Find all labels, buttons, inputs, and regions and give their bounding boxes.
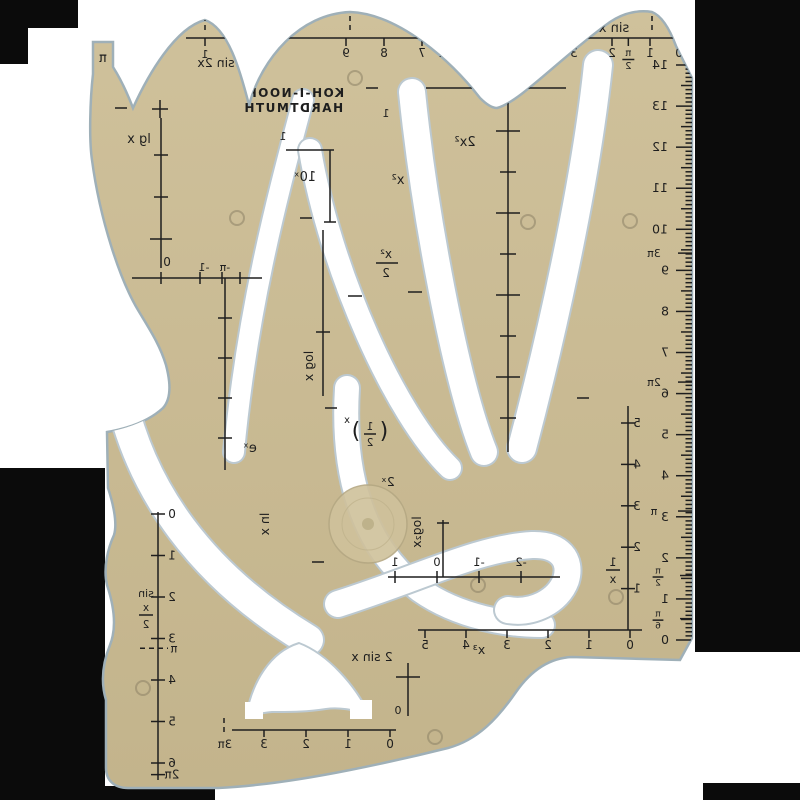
half-pow-num: 1 (367, 421, 374, 433)
scan-border-right-strip (695, 0, 800, 652)
ruler-number-1: 1 (661, 591, 669, 606)
brand-line-2: HARDTMUTH (243, 101, 343, 115)
inv-h-label-0: 0 (626, 638, 634, 652)
top-scale-label: 2π (439, 46, 454, 60)
half-pow-den: 2 (367, 437, 374, 449)
top-scale-frac-den: 2 (625, 61, 631, 72)
sinhalf-label-0: 0 (168, 507, 176, 521)
sinhalf-label-2π: 2π (165, 768, 180, 782)
neg-axis-minus1: -1 (199, 261, 210, 274)
hump-foot-right (350, 700, 372, 719)
sq-one: 1 (383, 107, 390, 120)
ruler-number-4: 4 (661, 468, 669, 483)
ruler-number-3: 3 (661, 509, 669, 524)
label-10-pow-x: 10ˣ (294, 170, 317, 185)
label-sin-half-word: sin (138, 587, 154, 600)
label-2-sin-x: 2 sin x (351, 649, 392, 664)
top-scale-label: 3 (570, 46, 578, 60)
hump-foot-left (245, 702, 263, 719)
label-pi-tab: π (99, 51, 107, 66)
ruler-number-13: 13 (652, 98, 668, 113)
sin2x-one: 1 (202, 48, 209, 61)
inv-h-label-4: 4 (462, 638, 470, 652)
ruler-pi-mark-3π: 3π (647, 247, 661, 260)
label-e-pow-x: eˣ (243, 441, 257, 456)
half-pow-paren-open: ( (380, 419, 389, 444)
photo-stage: { "brand": {"line1": "KOH-I-NOOR", "line… (0, 0, 800, 800)
sinhalf-label-2: 2 (168, 590, 176, 604)
ruler-number-9: 9 (661, 262, 669, 277)
label-lg-x: lg x (127, 132, 151, 147)
ruler-number-11: 11 (652, 180, 668, 195)
inv-frac-den: x (609, 572, 616, 586)
hump-label-0: 0 (386, 737, 394, 751)
template-photo: KOH-I-NOOR HARDTMUTH sin x sin 2x π lg x… (0, 0, 800, 800)
ruler-pifrac-num: π (655, 610, 661, 620)
label-2-pow-x: 2ˣ (381, 474, 395, 489)
log2-label--1: -1 (473, 555, 484, 569)
label-sin-half-den: 2 (143, 619, 150, 631)
top-scale-label: 8 (380, 46, 388, 60)
label-2x-squared: 2x² (454, 135, 475, 150)
top-scale-label: 2 (608, 46, 616, 60)
sinhalf-label-4: 4 (168, 673, 176, 687)
inv-v-label-5: 5 (633, 416, 641, 430)
label-x-cubed: x³ (473, 642, 485, 657)
log2-label--2: -2 (515, 555, 526, 569)
label-x-squared: x² (392, 173, 405, 188)
top-scale-label: 0 (675, 46, 683, 60)
tenx-one: 1 (280, 130, 287, 143)
sinhalf-pi-label: π (170, 641, 177, 655)
ruler-number-0: 0 (661, 632, 669, 647)
log2-label-1: 1 (391, 555, 398, 569)
hump-label-1: 1 (344, 737, 352, 751)
hump-label-3: 3 (260, 737, 268, 751)
lgx-zero: 0 (163, 255, 171, 269)
ruler-pifrac-den: 6 (655, 622, 661, 632)
inv-v-label-2: 2 (633, 540, 641, 554)
label-log-x: log x (301, 351, 316, 381)
ruler-number-2: 2 (661, 550, 669, 565)
scan-border-left-strip (0, 468, 105, 800)
ruler-number-8: 8 (661, 303, 669, 318)
inv-h-label-3: 3 (503, 638, 511, 652)
sin2x-zero: 0 (239, 47, 247, 61)
label-sin-x: sin x (598, 21, 629, 36)
sinhalf-label-1: 1 (168, 549, 176, 563)
sinhalf-label-5: 5 (168, 715, 176, 729)
ruler-pi-mark-2π: 2π (647, 376, 661, 389)
top-scale-label: 9 (342, 46, 350, 60)
ruler-number-14: 14 (652, 57, 668, 72)
inv-h-label-5: 5 (421, 638, 429, 652)
milled-circle (329, 485, 407, 563)
brand-line-1: KOH-I-NOOR (246, 86, 344, 100)
label-x2-half-num: x² (380, 247, 392, 261)
log2-label-0: 0 (433, 555, 440, 569)
ruler-number-6: 6 (661, 386, 669, 401)
ruler-pifrac-num: π (655, 567, 661, 577)
scan-border-left-top (0, 0, 28, 64)
hump-label-2: 2 (302, 737, 310, 751)
top-scale-label: 7 (418, 46, 426, 60)
neg-axis-minuspi: -π (219, 261, 230, 274)
ruler-pifrac-den: 2 (655, 579, 661, 589)
inv-v-label-3: 3 (633, 499, 641, 513)
inv-h-label-1: 1 (585, 638, 593, 652)
top-scale-frac-num: π (625, 48, 631, 59)
cross1-zero: 0 (395, 704, 402, 717)
label-x2-half-den: 2 (382, 266, 390, 280)
inv-v-label-4: 4 (633, 457, 641, 471)
ruler-number-12: 12 (652, 139, 668, 154)
ruler-number-7: 7 (661, 345, 669, 360)
half-pow-paren-close: ) (352, 419, 361, 444)
half-pow-exp: x (344, 415, 350, 426)
inv-h-label-2: 2 (544, 638, 552, 652)
label-log2-x: log₂x (409, 516, 424, 547)
label-sin-half-num: x (143, 602, 149, 614)
ruler-number-10: 10 (652, 221, 668, 236)
inv-frac-num: 1 (609, 555, 616, 569)
hump-pi-label: 3π (218, 737, 232, 751)
ruler-number-5: 5 (661, 427, 669, 442)
label-ln-x: ln x (257, 513, 272, 536)
inv-v-label-1: 1 (633, 582, 641, 596)
scan-border-bottom-right (703, 783, 800, 800)
ruler-pi-mark-π: π (650, 505, 657, 518)
